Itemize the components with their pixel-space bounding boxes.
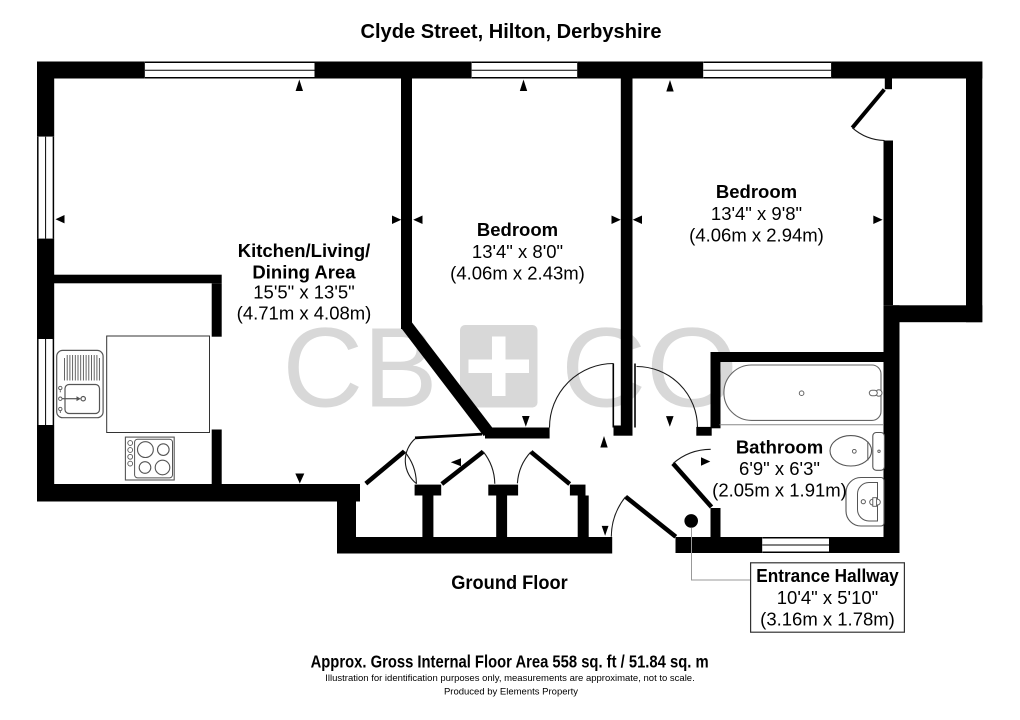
svg-text:13'4" x 9'8": 13'4" x 9'8" [711, 203, 802, 224]
svg-text:Bedroom: Bedroom [716, 181, 797, 202]
svg-text:(3.16m x 1.78m): (3.16m x 1.78m) [760, 609, 895, 630]
svg-text:(4.06m x 2.94m): (4.06m x 2.94m) [689, 225, 824, 246]
svg-text:Kitchen/Living/: Kitchen/Living/ [238, 240, 371, 261]
svg-text:Clyde Street, Hilton, Derbyshi: Clyde Street, Hilton, Derbyshire [361, 21, 662, 43]
svg-text:Produced by Elements Property: Produced by Elements Property [444, 687, 578, 698]
svg-text:(2.05m x 1.91m): (2.05m x 1.91m) [712, 480, 847, 501]
svg-text:(4.06m x 2.43m): (4.06m x 2.43m) [450, 262, 585, 283]
svg-text:CB: CB [283, 305, 438, 431]
svg-text:Bathroom: Bathroom [736, 436, 823, 457]
svg-text:15'5" x 13'5": 15'5" x 13'5" [253, 282, 354, 303]
svg-text:Bedroom: Bedroom [477, 219, 558, 240]
svg-text:Approx. Gross Internal Floor A: Approx. Gross Internal Floor Area 558 sq… [311, 652, 709, 672]
svg-text:6'9" x 6'3": 6'9" x 6'3" [739, 458, 820, 479]
svg-text:(4.71m x 4.08m): (4.71m x 4.08m) [237, 302, 372, 323]
svg-text:Dining Area: Dining Area [252, 262, 356, 283]
svg-text:10'4" x 5'10": 10'4" x 5'10" [777, 587, 878, 608]
svg-text:13'4" x 8'0": 13'4" x 8'0" [472, 241, 563, 262]
svg-text:Entrance Hallway: Entrance Hallway [756, 565, 899, 586]
svg-text:Ground Floor: Ground Floor [451, 572, 568, 594]
svg-text:Illustration for identificatio: Illustration for identification purposes… [325, 673, 694, 684]
